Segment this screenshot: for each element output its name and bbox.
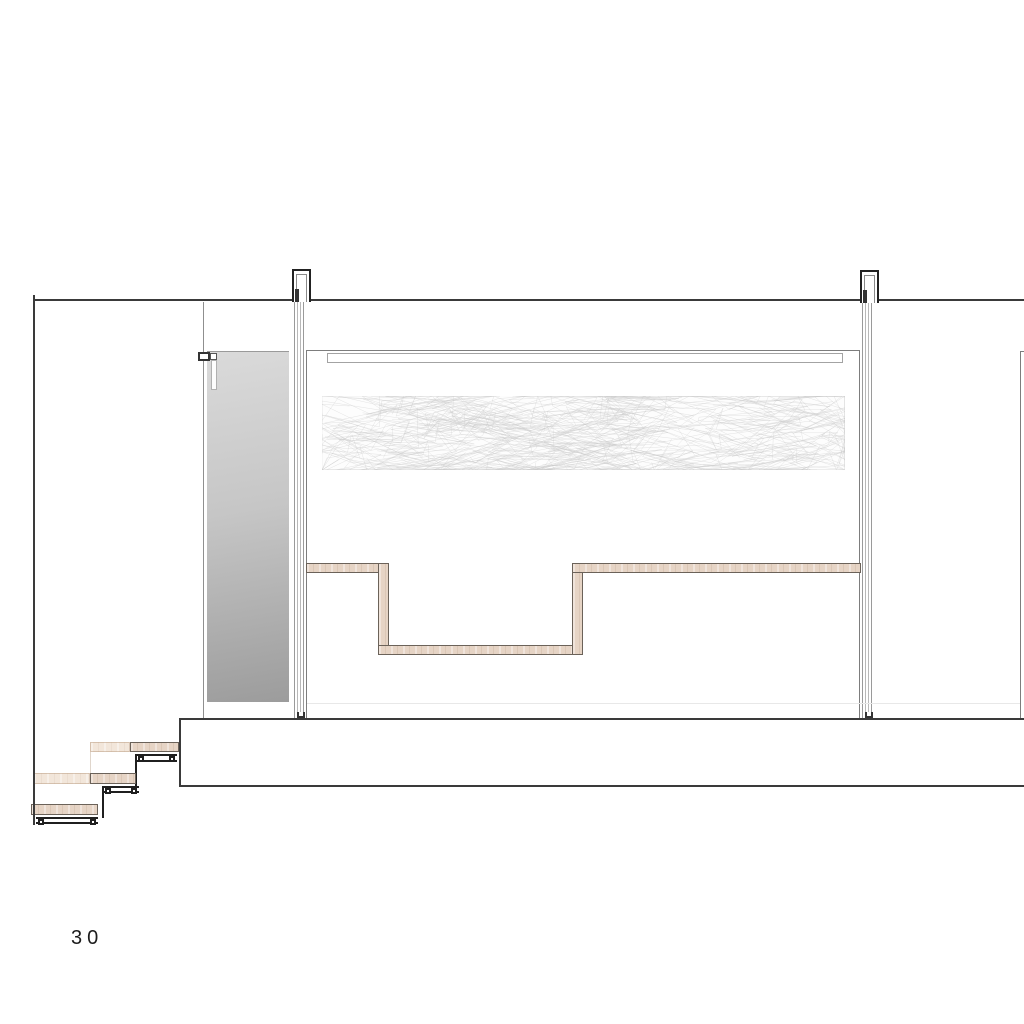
stair-stringer-2 [102, 786, 104, 818]
room-outline-right-edge [1020, 351, 1021, 718]
bench-top-right [572, 563, 861, 573]
stair-tread-1 [130, 742, 179, 752]
stair-frame-1 [136, 754, 177, 762]
drawing-sheet: 30 [0, 0, 1024, 1024]
stair-tread-1-back [90, 742, 130, 752]
room-outline-right-top [1020, 351, 1024, 352]
floor-datum-line [307, 703, 1021, 704]
column-left-roof-capital [292, 269, 311, 302]
column-right-foot [865, 712, 873, 718]
mirror-clamp-bracket [198, 352, 210, 361]
mirror-clamp-tab [210, 353, 217, 360]
column-right-roof-capital [860, 270, 879, 303]
column-left-mullions [294, 302, 305, 718]
stair-tread-2 [90, 773, 136, 784]
stair-joint-line [90, 752, 91, 773]
page-number: 30 [71, 927, 103, 950]
bench-top-left [306, 563, 389, 573]
ceiling-valance-beam [327, 353, 843, 363]
artwork-texture [322, 396, 845, 470]
bench-recess-right-wall [572, 563, 583, 655]
stair-frame-2 [103, 786, 139, 793]
stair-tread-2-back [33, 773, 90, 784]
bench-recess-bottom [378, 645, 583, 655]
bench-recess-left-wall [378, 563, 389, 655]
base-plinth [179, 718, 1024, 787]
glass-partition-line [203, 302, 204, 718]
mirror-panel [207, 351, 289, 702]
stair-tread-3 [31, 804, 98, 815]
column-right-mullions [862, 302, 873, 718]
column-left-foot [297, 712, 305, 718]
left-wall-section-line [33, 300, 35, 825]
stair-frame-3 [36, 817, 98, 824]
mirror-hanger-strip [211, 360, 217, 390]
